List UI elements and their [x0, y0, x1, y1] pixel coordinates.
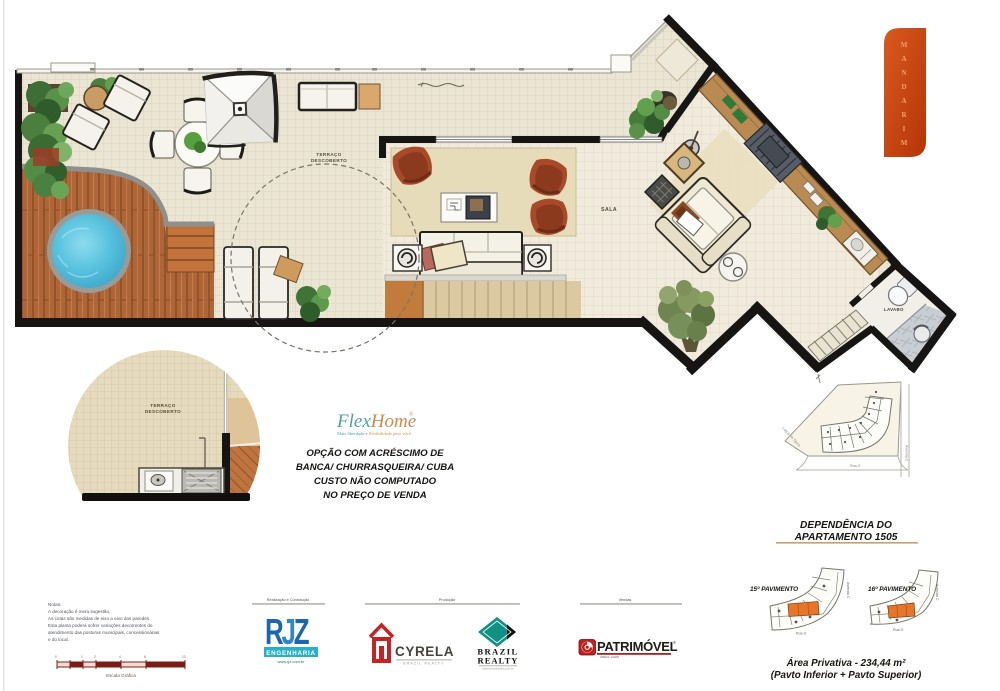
- svg-text:TERRAÇO: TERRAÇO: [316, 152, 342, 157]
- svg-text:DESCOBERTO: DESCOBERTO: [311, 158, 347, 163]
- svg-text:I: I: [903, 125, 906, 133]
- svg-text:TERRAÇO: TERRAÇO: [150, 403, 176, 408]
- svg-text:Avenida C: Avenida C: [935, 584, 939, 601]
- svg-text:®: ®: [409, 411, 414, 418]
- svg-text:www.rjz.com.br: www.rjz.com.br: [277, 659, 305, 664]
- svg-text:Mais liberdade e flexibilidade: Mais liberdade e flexibilidade para você: [337, 431, 411, 436]
- svg-text:NO PREÇO DE VENDA: NO PREÇO DE VENDA: [323, 490, 426, 501]
- svg-text:4: 4: [119, 655, 121, 659]
- svg-text:Rua G: Rua G: [796, 632, 807, 636]
- svg-text:SALA: SALA: [601, 207, 617, 213]
- svg-text:D: D: [901, 83, 906, 91]
- svg-text:CRECI J-0267: CRECI J-0267: [600, 655, 620, 659]
- svg-text:Rua G: Rua G: [850, 464, 861, 468]
- svg-text:Produção: Produção: [439, 598, 455, 602]
- svg-text:M: M: [901, 41, 908, 49]
- svg-text:FlexHome: FlexHome: [336, 411, 416, 432]
- svg-text:atendimento das posturas munic: atendimento das posturas municipais, con…: [48, 630, 160, 635]
- svg-text:REALTY: REALTY: [477, 656, 518, 666]
- svg-text:APARTAMENTO 1505: APARTAMENTO 1505: [794, 532, 898, 543]
- svg-text:BANCA/ CHURRASQUEIRA/ CUBA: BANCA/ CHURRASQUEIRA/ CUBA: [296, 462, 454, 473]
- svg-text:A: A: [901, 55, 906, 63]
- svg-text:0: 0: [55, 655, 57, 659]
- svg-text:www.brazilrealty.com.br: www.brazilrealty.com.br: [482, 667, 513, 671]
- svg-text:Notas:: Notas:: [48, 602, 61, 607]
- svg-text:(Pavto Inferior + Pavto Superi: (Pavto Inferior + Pavto Superior): [771, 670, 922, 681]
- svg-text:6: 6: [144, 655, 146, 659]
- svg-text:LAVABO: LAVABO: [884, 307, 904, 312]
- svg-text:PATRIMÓVEL: PATRIMÓVEL: [597, 639, 678, 654]
- svg-text:DEPENDÊNCIA DO: DEPENDÊNCIA DO: [800, 518, 892, 531]
- svg-text:Realização e Construção: Realização e Construção: [267, 598, 309, 602]
- svg-text:2: 2: [94, 655, 96, 659]
- svg-text:Esta planta poderá sofrer vari: Esta planta poderá sofrer variações deco…: [48, 623, 153, 628]
- svg-text:e do local.: e do local.: [48, 637, 69, 642]
- svg-text:Rua G: Rua G: [893, 628, 904, 632]
- svg-text:M: M: [901, 139, 908, 147]
- svg-text:®: ®: [673, 640, 676, 645]
- svg-text:RJZ: RJZ: [265, 612, 310, 652]
- svg-text:Avenida C: Avenida C: [846, 582, 850, 599]
- svg-text:CUSTO NÃO COMPUTADO: CUSTO NÃO COMPUTADO: [314, 476, 437, 487]
- svg-text:As cotas são medidas de eixo a: As cotas são medidas de eixo a eixo das …: [48, 616, 150, 621]
- svg-text:A decoração é mera sugestão.: A decoração é mera sugestão.: [48, 609, 110, 614]
- svg-text:Área Privativa - 234,44 m²: Área Privativa - 234,44 m²: [786, 658, 906, 669]
- svg-text:OPÇÃO COM ACRÉSCIMO DE: OPÇÃO COM ACRÉSCIMO DE: [306, 448, 444, 459]
- svg-text:Escala Gráfica: Escala Gráfica: [106, 673, 136, 678]
- svg-text:Avenida C: Avenida C: [905, 445, 909, 462]
- svg-text:A: A: [901, 97, 906, 105]
- svg-text:DESCOBERTO: DESCOBERTO: [145, 409, 181, 414]
- svg-text:Vendas: Vendas: [619, 598, 632, 602]
- svg-text:15º PAVIMENTO: 15º PAVIMENTO: [750, 586, 798, 593]
- svg-text:BRAZIL REALTY: BRAZIL REALTY: [403, 662, 444, 666]
- svg-text:ENGENHARIA: ENGENHARIA: [266, 650, 316, 657]
- svg-text:N: N: [901, 69, 906, 77]
- svg-text:16º PAVIMENTO: 16º PAVIMENTO: [868, 586, 916, 593]
- svg-text:CYRELA: CYRELA: [395, 644, 454, 659]
- svg-text:10: 10: [182, 655, 186, 659]
- svg-text:1: 1: [81, 655, 83, 659]
